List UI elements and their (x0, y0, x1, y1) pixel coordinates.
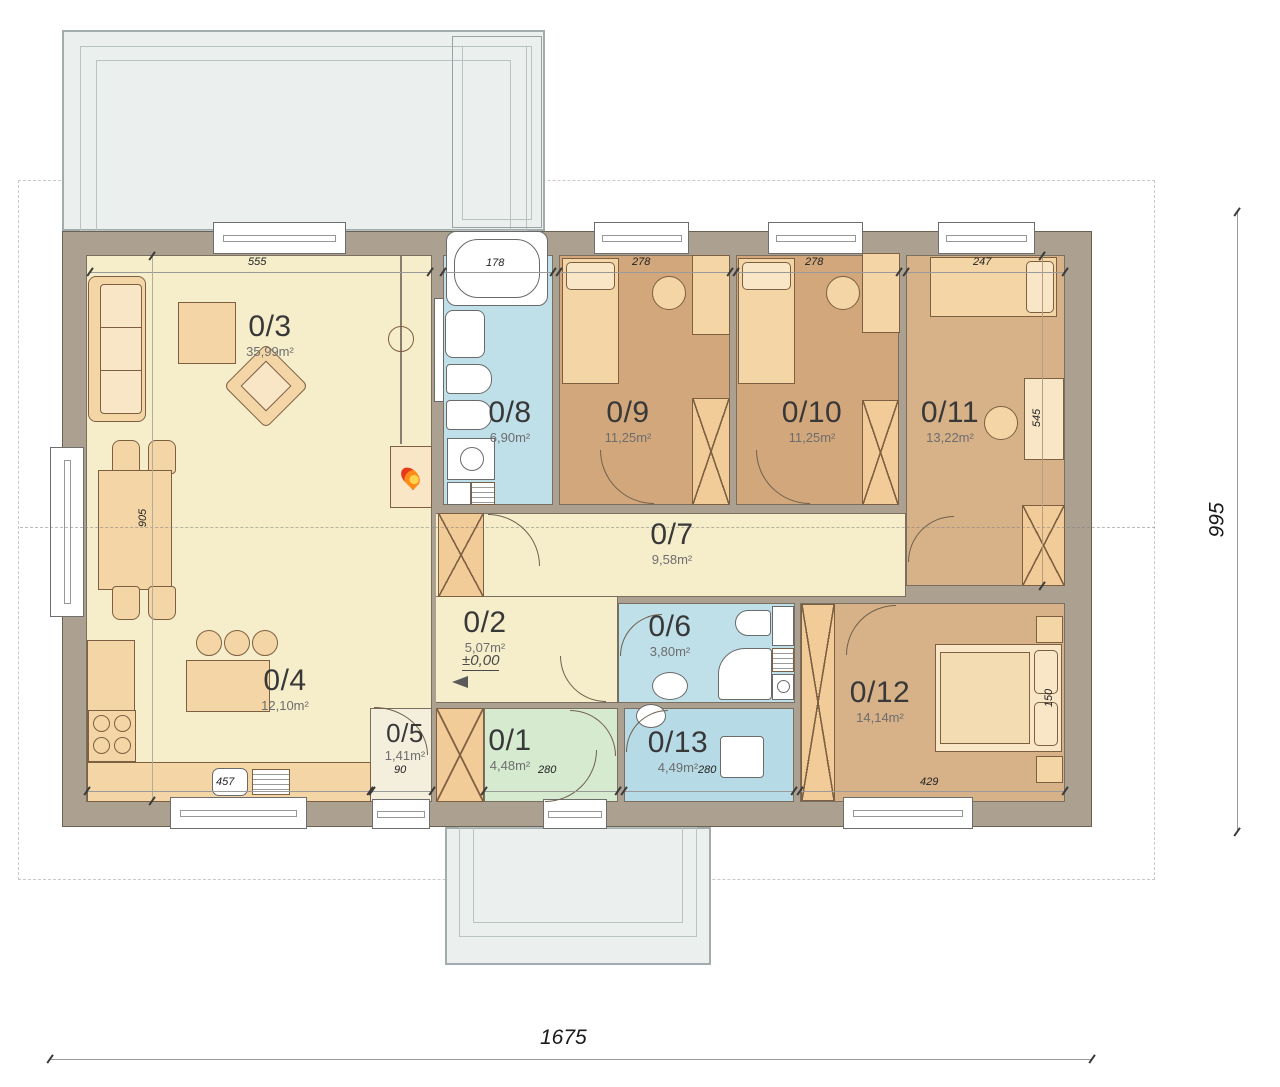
dim-label: 247 (973, 256, 991, 268)
room-area: 11,25m² (752, 431, 872, 444)
room-id: 0/4 (225, 666, 345, 696)
wardrobe-corridor (438, 513, 484, 597)
bar-stool-icon (252, 630, 278, 656)
dim-label: 280 (698, 764, 716, 776)
dim-label: 905 (137, 509, 149, 527)
room-id: 0/7 (612, 520, 732, 550)
window (50, 447, 84, 617)
dim-label: 278 (805, 256, 823, 268)
dim-line (87, 791, 370, 792)
oven-knob (777, 680, 790, 693)
overall-dim-line-vertical (1237, 212, 1238, 832)
dim-line (90, 272, 430, 273)
bar-stool-icon (224, 630, 250, 656)
washbasin-icon (445, 310, 485, 358)
desk-icon (692, 255, 730, 335)
pillow (742, 262, 791, 290)
room-label-0-13: 0/13 4,49m² (618, 728, 738, 774)
room-label-0-5: 0/5 1,41m² (345, 720, 465, 762)
nightstand-icon (1036, 616, 1063, 643)
burner-icon (114, 737, 131, 754)
window (372, 799, 430, 829)
dim-label: 457 (216, 776, 234, 788)
dim-label: 150 (1043, 689, 1055, 707)
dim-label: 545 (1031, 409, 1043, 427)
overall-dim-label-height: 995 (1206, 502, 1230, 537)
room-label-0-12: 0/12 14,14m² (820, 678, 940, 724)
dim-label: 90 (394, 764, 406, 776)
dining-table-icon (98, 470, 172, 590)
room-id: 0/11 (890, 398, 1010, 428)
toilet-icon (735, 610, 771, 636)
pillow (1034, 702, 1058, 746)
dining-chair-icon (112, 440, 140, 474)
room-label-0-2: 0/2 5,07m² (425, 608, 545, 654)
desk-chair-icon (826, 276, 860, 310)
window (938, 222, 1035, 254)
dim-line (736, 272, 899, 273)
room-label-0-4: 0/4 12,10m² (225, 666, 345, 712)
mini-grill-icon (471, 482, 495, 505)
porch-line (473, 827, 683, 923)
dim-line (372, 791, 432, 792)
entrance-door-threshold (543, 799, 607, 829)
centerline (20, 527, 1155, 528)
mini-grill-icon (772, 648, 794, 672)
room-label-0-7: 0/7 9,58m² (612, 520, 732, 566)
wall-lamp-icon (388, 326, 414, 352)
sofa-cushions (100, 284, 142, 414)
room-area: 14,14m² (820, 711, 940, 724)
level-arrow-icon (452, 676, 468, 688)
window (843, 797, 973, 829)
terrace-line (96, 60, 511, 231)
window (213, 222, 346, 254)
room-id: 0/13 (618, 728, 738, 758)
window (768, 222, 863, 254)
dim-label: 280 (538, 764, 556, 776)
pillow (1034, 650, 1058, 694)
burner-icon (114, 715, 131, 732)
room-area: 6,90m² (450, 431, 570, 444)
dim-label: 178 (486, 257, 504, 269)
washer-drum-icon (460, 447, 484, 471)
dim-line (624, 791, 794, 792)
room-label-0-10: 0/10 11,25m² (752, 398, 872, 444)
nightstand-icon (1036, 756, 1063, 783)
pillow (566, 262, 615, 290)
room-area: 13,22m² (890, 431, 1010, 444)
dim-line (484, 791, 618, 792)
dim-line (152, 256, 153, 801)
dim-label: 429 (920, 776, 938, 788)
washbasin-icon (652, 672, 688, 700)
room-area: 35,99m² (210, 345, 330, 358)
wardrobe-bedroom3 (1022, 505, 1065, 586)
shelf (434, 298, 444, 402)
overall-dim-line-horizontal (50, 1059, 1092, 1060)
dim-line (443, 272, 553, 273)
dim-line (800, 791, 1065, 792)
room-id: 0/9 (568, 398, 688, 428)
window (594, 222, 689, 254)
room-id: 0/3 (210, 312, 330, 342)
desk-icon (862, 253, 900, 333)
room-id: 0/5 (345, 720, 465, 746)
room-area: 9,58m² (612, 553, 732, 566)
burner-icon (93, 715, 110, 732)
wardrobe-bedroom1 (692, 398, 730, 505)
toilet-icon (446, 364, 492, 394)
room-label-0-3: 0/3 35,99m² (210, 312, 330, 358)
room-id: 0/12 (820, 678, 940, 708)
level-marker: ±0,00 (462, 652, 499, 671)
blanket (940, 652, 1030, 744)
window (170, 797, 307, 829)
room-id: 0/1 (450, 726, 570, 756)
room-area: 4,49m² (618, 761, 738, 774)
room-area: 11,25m² (568, 431, 688, 444)
dim-line (559, 272, 730, 273)
overall-dim-label-width: 1675 (540, 1026, 587, 1050)
dim-label: 555 (248, 256, 266, 268)
room-id: 0/6 (610, 612, 730, 642)
desk-icon (1024, 378, 1064, 460)
room-label-0-8: 0/8 6,90m² (450, 398, 570, 444)
room-label-0-9: 0/9 11,25m² (568, 398, 688, 444)
dining-chair-icon (112, 586, 140, 620)
dim-label: 278 (632, 256, 650, 268)
room-area: 3,80m² (610, 645, 730, 658)
bar-stool-icon (196, 630, 222, 656)
desk-chair-icon (652, 276, 686, 310)
bath-counter (772, 606, 794, 646)
room-label-0-6: 0/6 3,80m² (610, 612, 730, 658)
room-id: 0/2 (425, 608, 545, 638)
terrace-column-inner (462, 46, 532, 220)
mini-cooktop-icon (447, 482, 471, 505)
room-area: 1,41m² (345, 749, 465, 762)
room-label-0-11: 0/11 13,22m² (890, 398, 1010, 444)
room-area: 12,10m² (225, 699, 345, 712)
floor-plan: 0/3 35,99m² 0/8 6,90m² 0/9 11,25m² 0/10 … (0, 0, 1280, 1087)
pillow (1026, 261, 1054, 313)
burner-icon (93, 737, 110, 754)
room-id: 0/10 (752, 398, 872, 428)
room-id: 0/8 (450, 398, 570, 428)
